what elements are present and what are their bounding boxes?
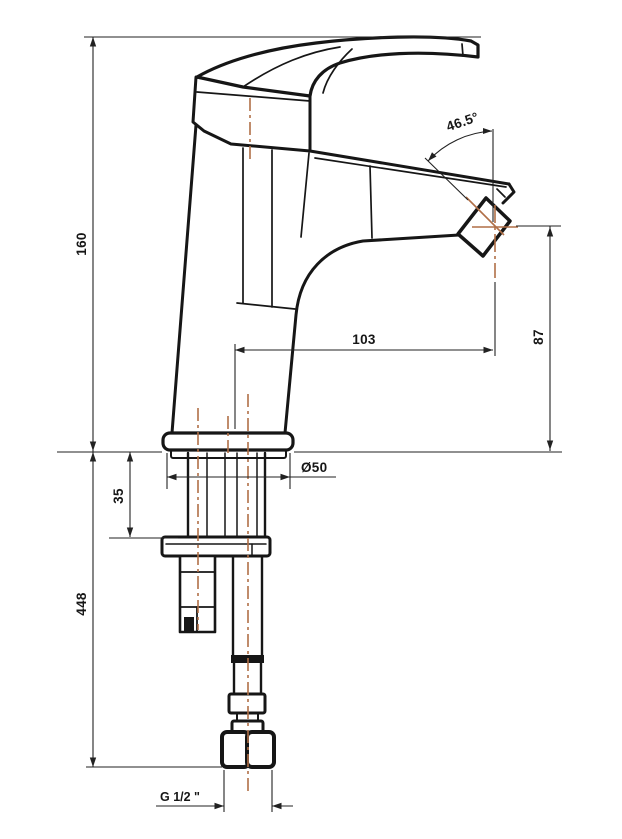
dim-label-outlet-height: 87 (531, 329, 546, 345)
handle-lever (197, 37, 478, 96)
dim-label-height-above: 160 (74, 232, 89, 255)
handle-lever-tip-notch (462, 44, 463, 56)
dim-label-spout-reach: 103 (352, 332, 376, 347)
dim-label-base-diameter: Ø50 (301, 460, 327, 475)
dim-label-deck-thickness: 35 (111, 488, 126, 504)
angle-arc-arrow-high (483, 128, 492, 134)
hex-connector-nut-left (222, 732, 249, 767)
lock-nut (162, 537, 270, 556)
dim-label-hose-length: 448 (74, 592, 89, 616)
threaded-shank (188, 453, 265, 537)
angle-arc (428, 131, 492, 161)
drawing-canvas: 160 448 35 103 87 Ø50 46.5° G 1/2 " (0, 0, 622, 839)
faucet-dimension-drawing: 160 448 35 103 87 Ø50 46.5° G 1/2 " (0, 0, 622, 839)
faucet-body-fill (172, 125, 510, 433)
spout-nose-inner-line (497, 189, 505, 197)
check-valve-port (184, 617, 194, 631)
hex-connector-nut-right (247, 732, 274, 767)
faucet-outline (162, 37, 514, 767)
dim-label-thread: G 1/2 " (160, 790, 200, 804)
dim-label-outlet-angle: 46.5° (444, 109, 480, 134)
hose-ferrule (229, 694, 265, 713)
